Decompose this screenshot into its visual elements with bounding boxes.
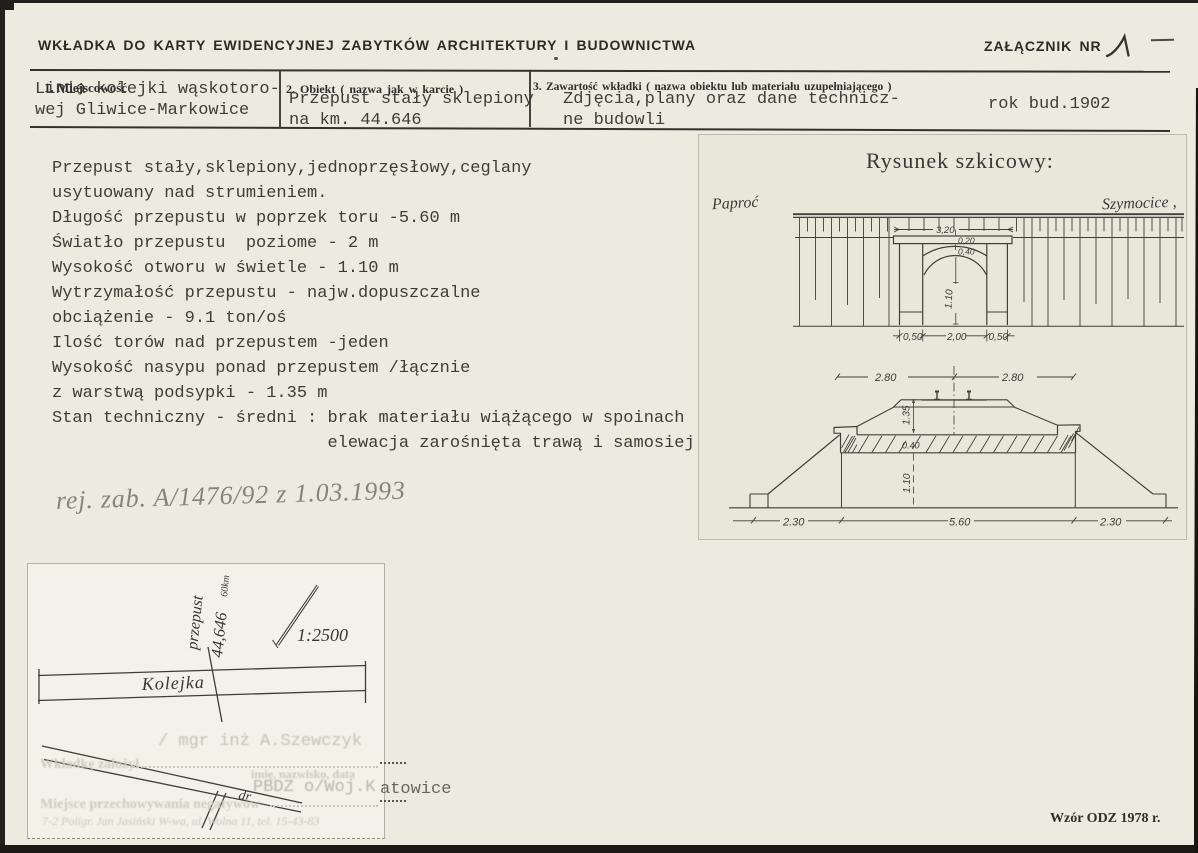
svg-text:3,20: 3,20 xyxy=(936,225,955,236)
svg-text:0,20: 0,20 xyxy=(958,236,975,246)
svg-text:1.10: 1.10 xyxy=(902,473,913,493)
svg-text:44,646: 44,646 xyxy=(207,611,231,659)
svg-text:2.30: 2.30 xyxy=(1099,517,1122,529)
svg-text:przepust: przepust xyxy=(184,594,207,651)
svg-text:60km: 60km xyxy=(219,575,232,598)
svg-text:0,50: 0,50 xyxy=(989,332,1009,343)
svg-text:1.10: 1.10 xyxy=(944,289,956,309)
svg-text:1.35: 1.35 xyxy=(902,405,913,425)
svg-text:2.30: 2.30 xyxy=(782,517,805,529)
svg-text:0,50: 0,50 xyxy=(903,332,923,343)
svg-text:Kolejka: Kolejka xyxy=(140,672,205,694)
svg-text:2,00: 2,00 xyxy=(946,332,967,343)
svg-text:0.40: 0.40 xyxy=(902,441,920,451)
svg-text:0,40: 0,40 xyxy=(958,247,975,257)
svg-text:1:2500: 1:2500 xyxy=(297,625,348,645)
svg-text:2.80: 2.80 xyxy=(874,372,897,384)
svg-text:5.60: 5.60 xyxy=(949,517,971,529)
svg-text:2.80: 2.80 xyxy=(1001,372,1024,384)
